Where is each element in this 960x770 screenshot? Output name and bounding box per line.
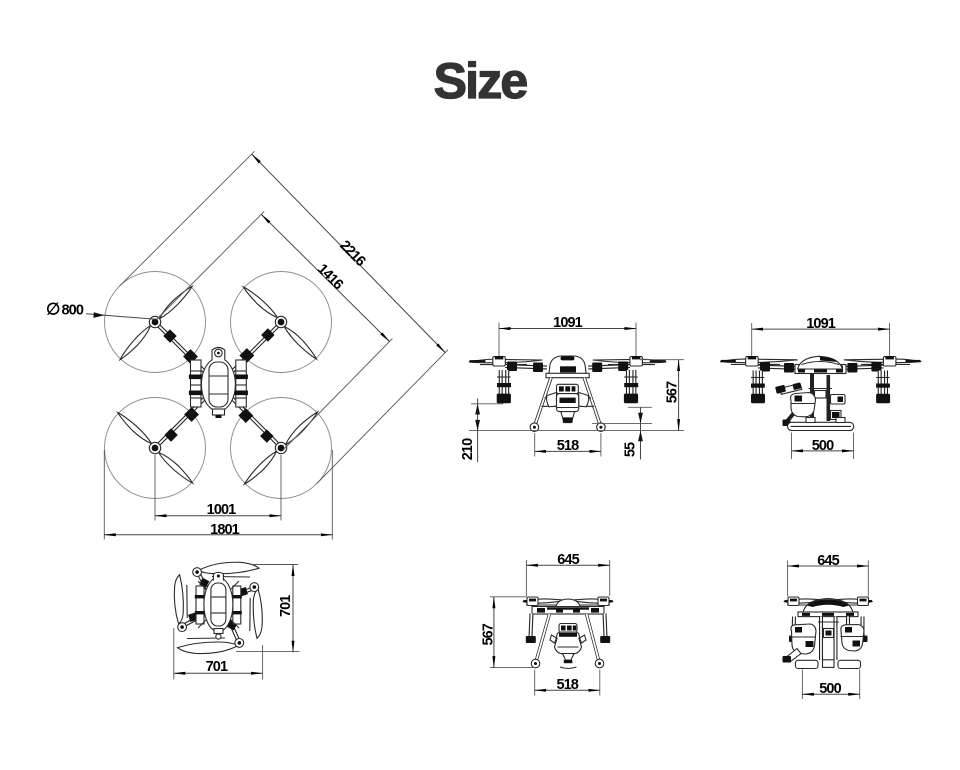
svg-text:567: 567	[480, 623, 496, 645]
svg-text:210: 210	[460, 438, 476, 460]
svg-text:645: 645	[817, 553, 839, 569]
svg-text:∅800: ∅800	[46, 301, 84, 319]
svg-text:500: 500	[812, 438, 834, 454]
svg-text:55: 55	[622, 442, 638, 457]
svg-text:2216: 2216	[336, 238, 368, 270]
svg-text:567: 567	[664, 381, 680, 403]
svg-text:500: 500	[819, 681, 841, 697]
svg-text:645: 645	[557, 552, 579, 568]
svg-text:1091: 1091	[806, 316, 835, 332]
svg-text:701: 701	[206, 659, 228, 675]
svg-text:1001: 1001	[207, 502, 236, 518]
svg-text:518: 518	[557, 438, 579, 454]
svg-text:1801: 1801	[210, 522, 239, 538]
svg-text:518: 518	[556, 677, 578, 693]
svg-text:1091: 1091	[553, 315, 582, 331]
svg-text:701: 701	[278, 595, 294, 617]
